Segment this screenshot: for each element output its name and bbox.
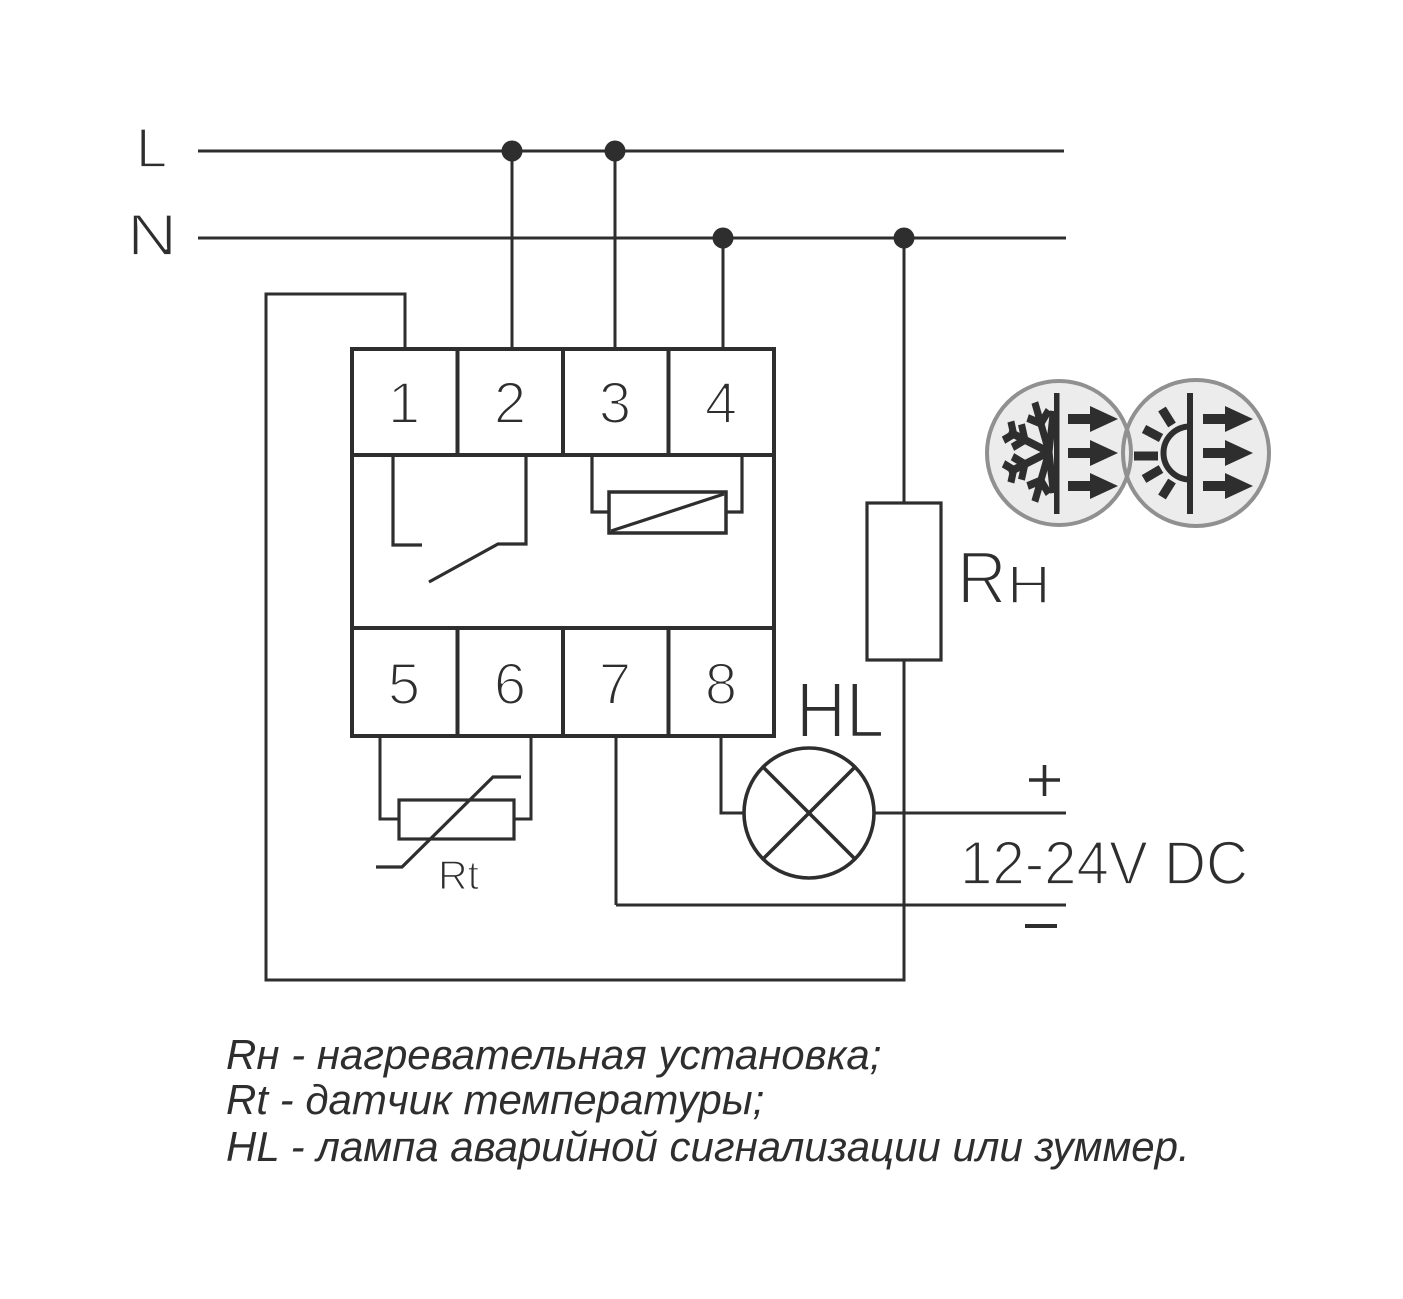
svg-text:4: 4 — [705, 371, 737, 436]
svg-text:N: N — [127, 202, 177, 267]
svg-text:Rt - датчик температуры;: Rt - датчик температуры; — [226, 1076, 764, 1123]
svg-text:Н: Н — [1007, 555, 1051, 615]
svg-text:HL - лампа аварийной сигнализа: HL - лампа аварийной сигнализации или зу… — [226, 1123, 1190, 1170]
svg-text:7: 7 — [599, 652, 631, 717]
svg-text:12-24V DC: 12-24V DC — [960, 829, 1248, 898]
svg-text:1: 1 — [388, 371, 420, 436]
svg-text:R: R — [957, 537, 1007, 620]
svg-text:8: 8 — [705, 652, 737, 717]
svg-text:6: 6 — [494, 652, 526, 717]
svg-text:Rt: Rt — [438, 852, 480, 898]
svg-text:HL: HL — [796, 666, 884, 754]
svg-text:5: 5 — [388, 652, 420, 717]
svg-text:L: L — [136, 116, 167, 179]
svg-text:Rн - нагревательная установка;: Rн - нагревательная установка; — [226, 1031, 881, 1078]
svg-text:3: 3 — [599, 371, 631, 436]
svg-text:2: 2 — [494, 371, 526, 436]
